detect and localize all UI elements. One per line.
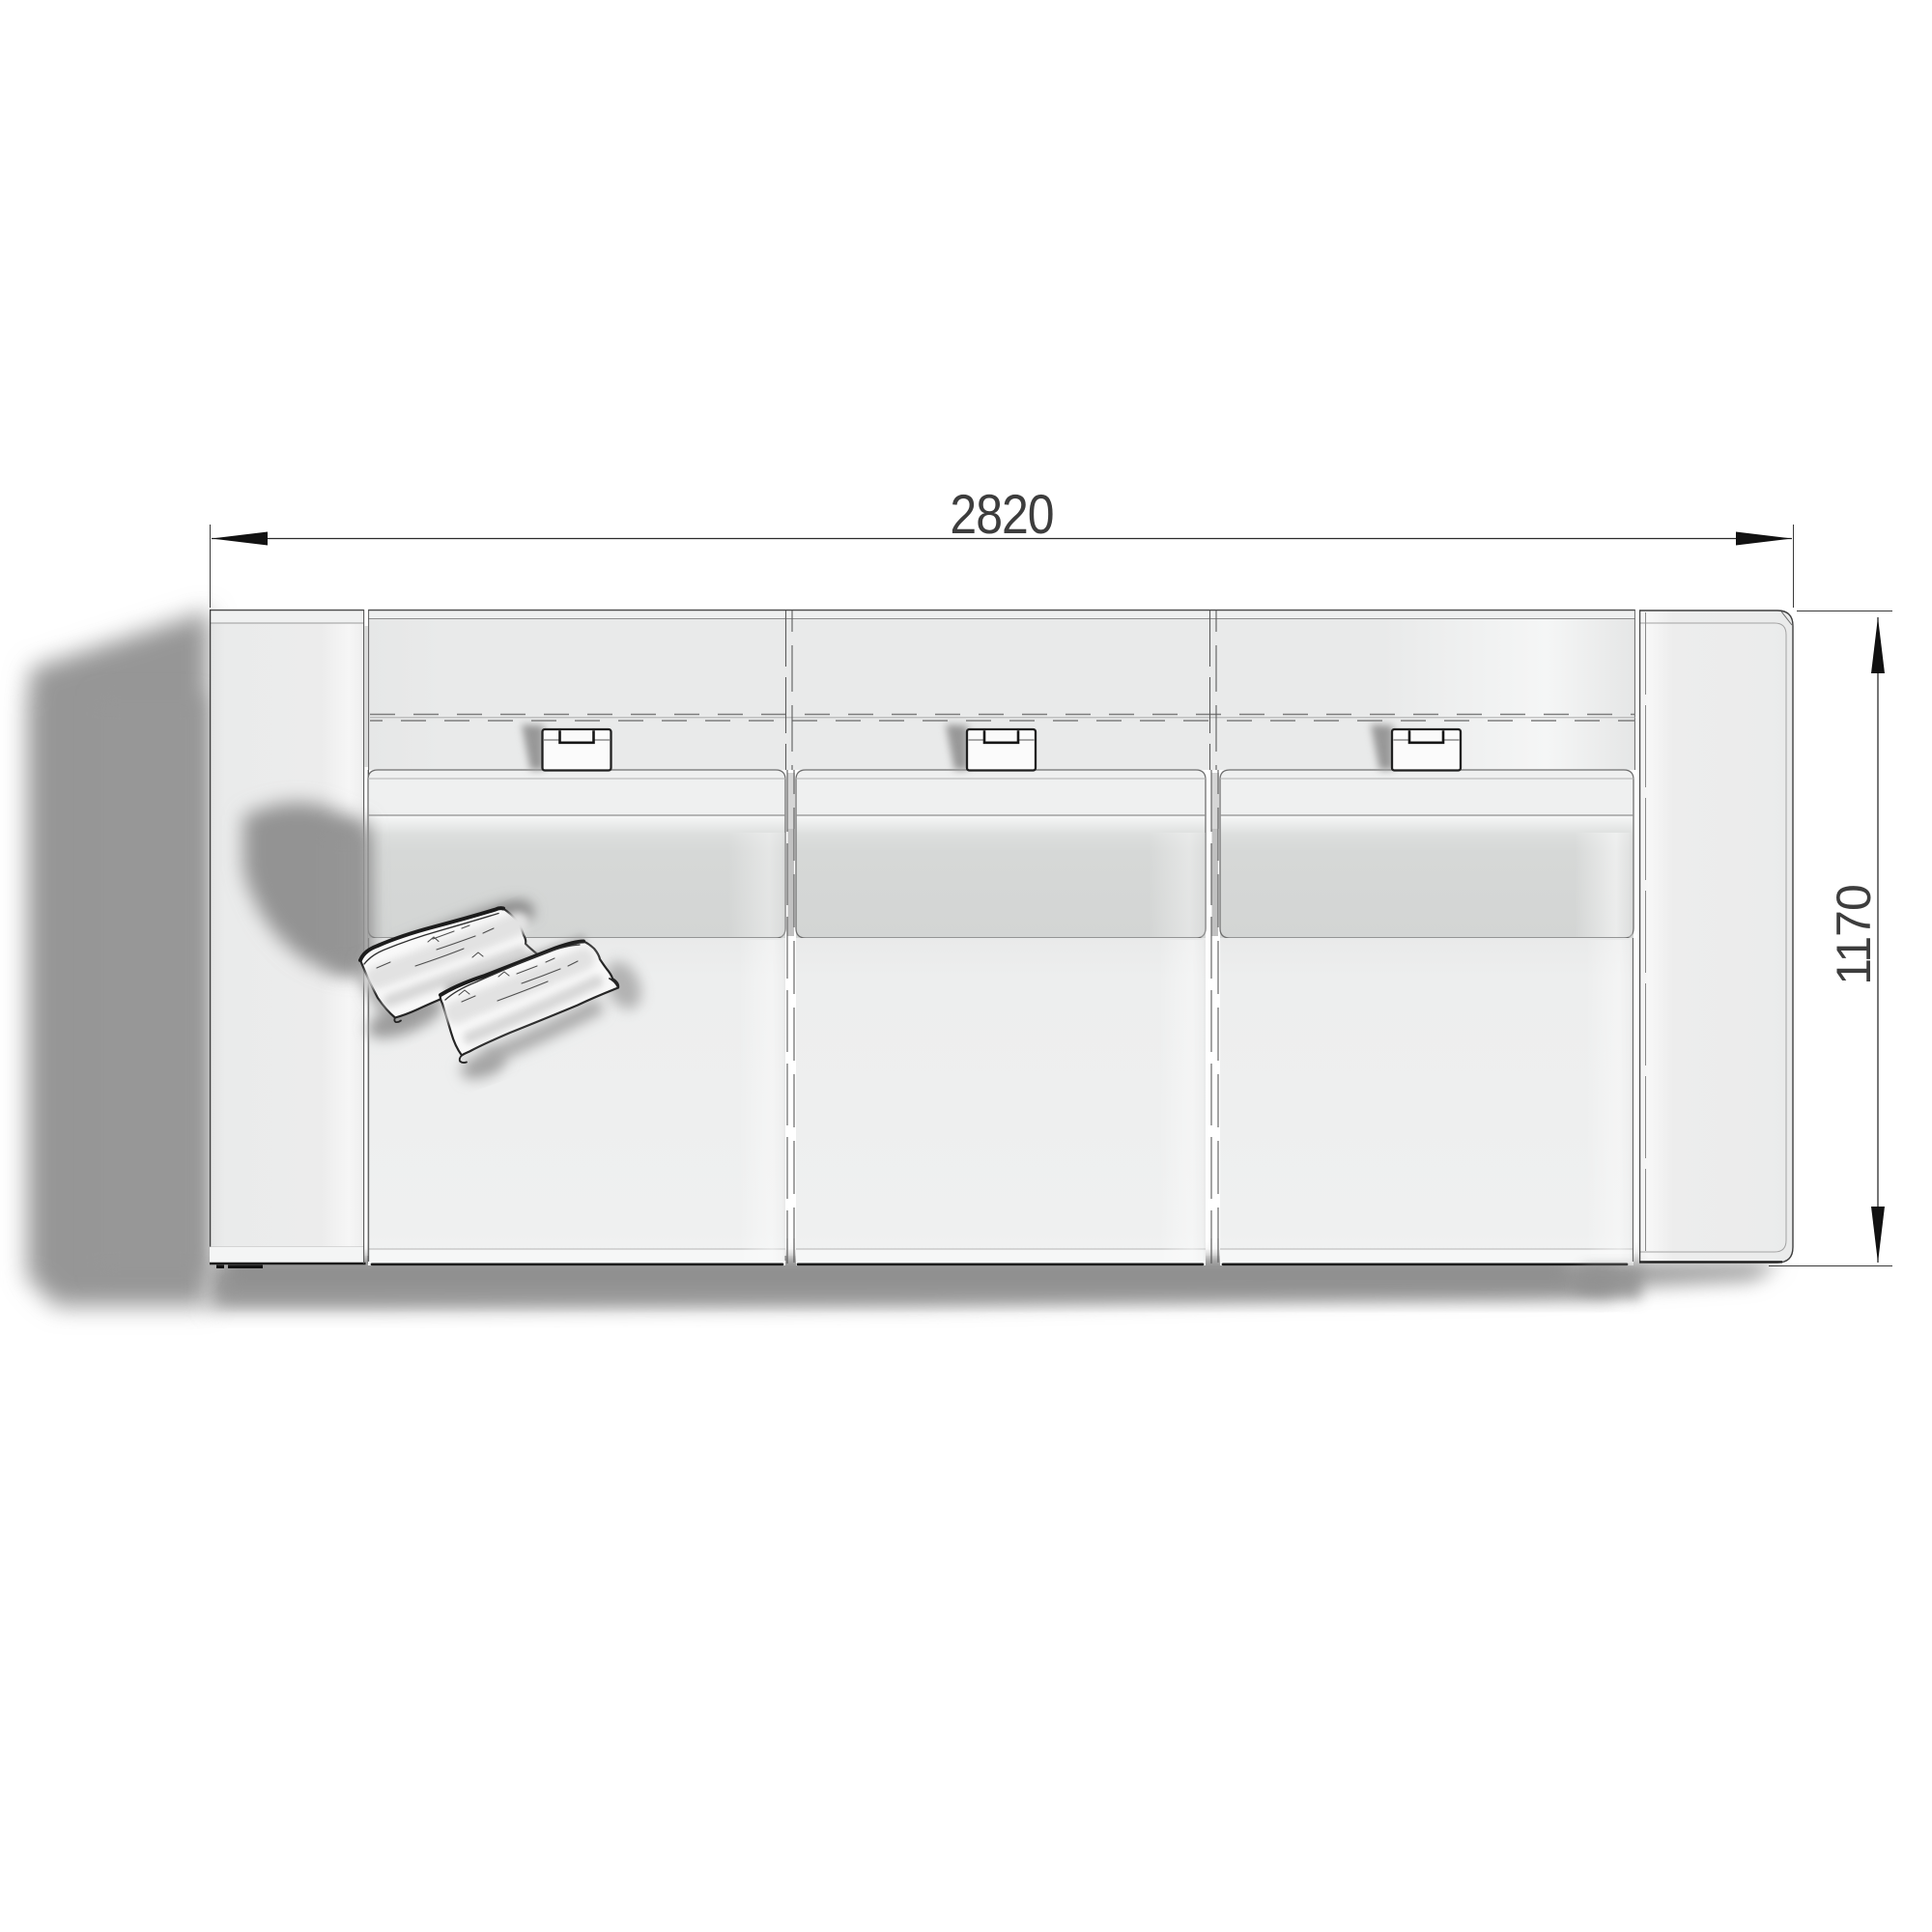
svg-text:2820: 2820 <box>950 484 1053 546</box>
svg-text:1170: 1170 <box>1827 885 1881 985</box>
